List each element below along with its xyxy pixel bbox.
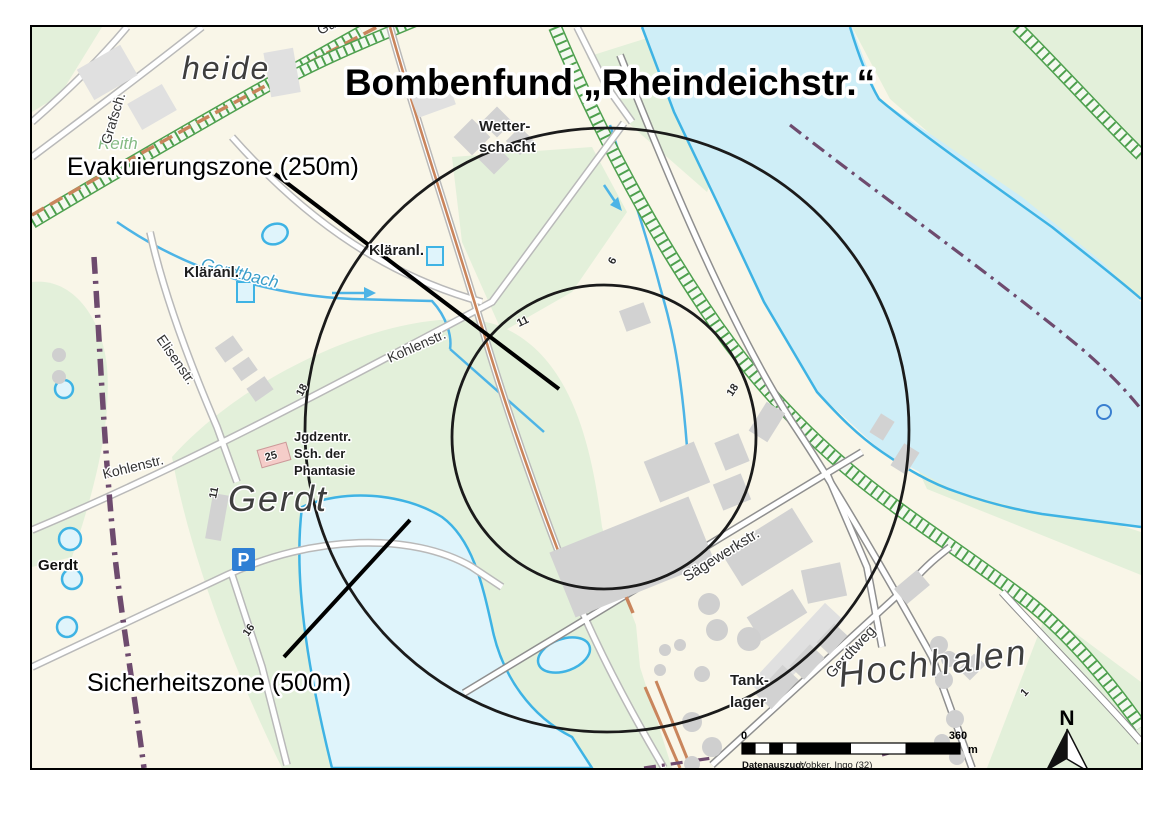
map-title: Bombenfund „Rheindeichstr.“: [345, 62, 875, 103]
poi-label-jgdzentr-1: Jgdzentr.: [294, 429, 351, 444]
poi-label-wetterschacht-2: schacht: [479, 139, 536, 156]
house-number-11a: 11: [207, 486, 221, 500]
map-canvas: P Güterba heide Reith Grafsch. Gerdtbach…: [32, 27, 1141, 768]
poi-label-tanklager-1: Tank-: [730, 672, 769, 689]
parking-letter: P: [237, 550, 249, 570]
poi-label-klaeranl-mid: Kläranl.: [369, 242, 424, 259]
poi-label-klaeranl-west: Kläranl.: [184, 264, 239, 281]
map-document: P Güterba heide Reith Grafsch. Gerdtbach…: [0, 0, 1169, 827]
attribution-label: Datenauszug:: [742, 760, 804, 768]
poi-label-wetterschacht-1: Wetter-: [479, 118, 530, 135]
scale-unit-label: m: [968, 744, 978, 756]
parking-icon: P: [232, 548, 255, 571]
map-frame: P Güterba heide Reith Grafsch. Gerdtbach…: [30, 25, 1143, 770]
place-label-gerdt: Gerdt: [228, 478, 328, 519]
stop-label-gerdt: Gerdt: [38, 557, 78, 574]
scale-start-label: 0: [741, 730, 747, 742]
poi-label-jgdzentr-2: Sch. der: [294, 446, 345, 461]
poi-label-tanklager-2: lager: [730, 694, 766, 711]
scale-end-label: 360: [949, 730, 967, 742]
security-zone-label: Sicherheitszone (500m): [87, 669, 351, 697]
north-label: N: [1059, 707, 1074, 730]
attribution: Datenauszug: Vobker, Ingo (32): [742, 760, 872, 768]
attribution-value: Vobker, Ingo (32): [800, 760, 872, 768]
evacuation-zone-label: Evakuierungszone (250m): [67, 153, 359, 181]
place-label-heide: heide: [182, 50, 270, 86]
poi-label-jgdzentr-3: Phantasie: [294, 463, 355, 478]
